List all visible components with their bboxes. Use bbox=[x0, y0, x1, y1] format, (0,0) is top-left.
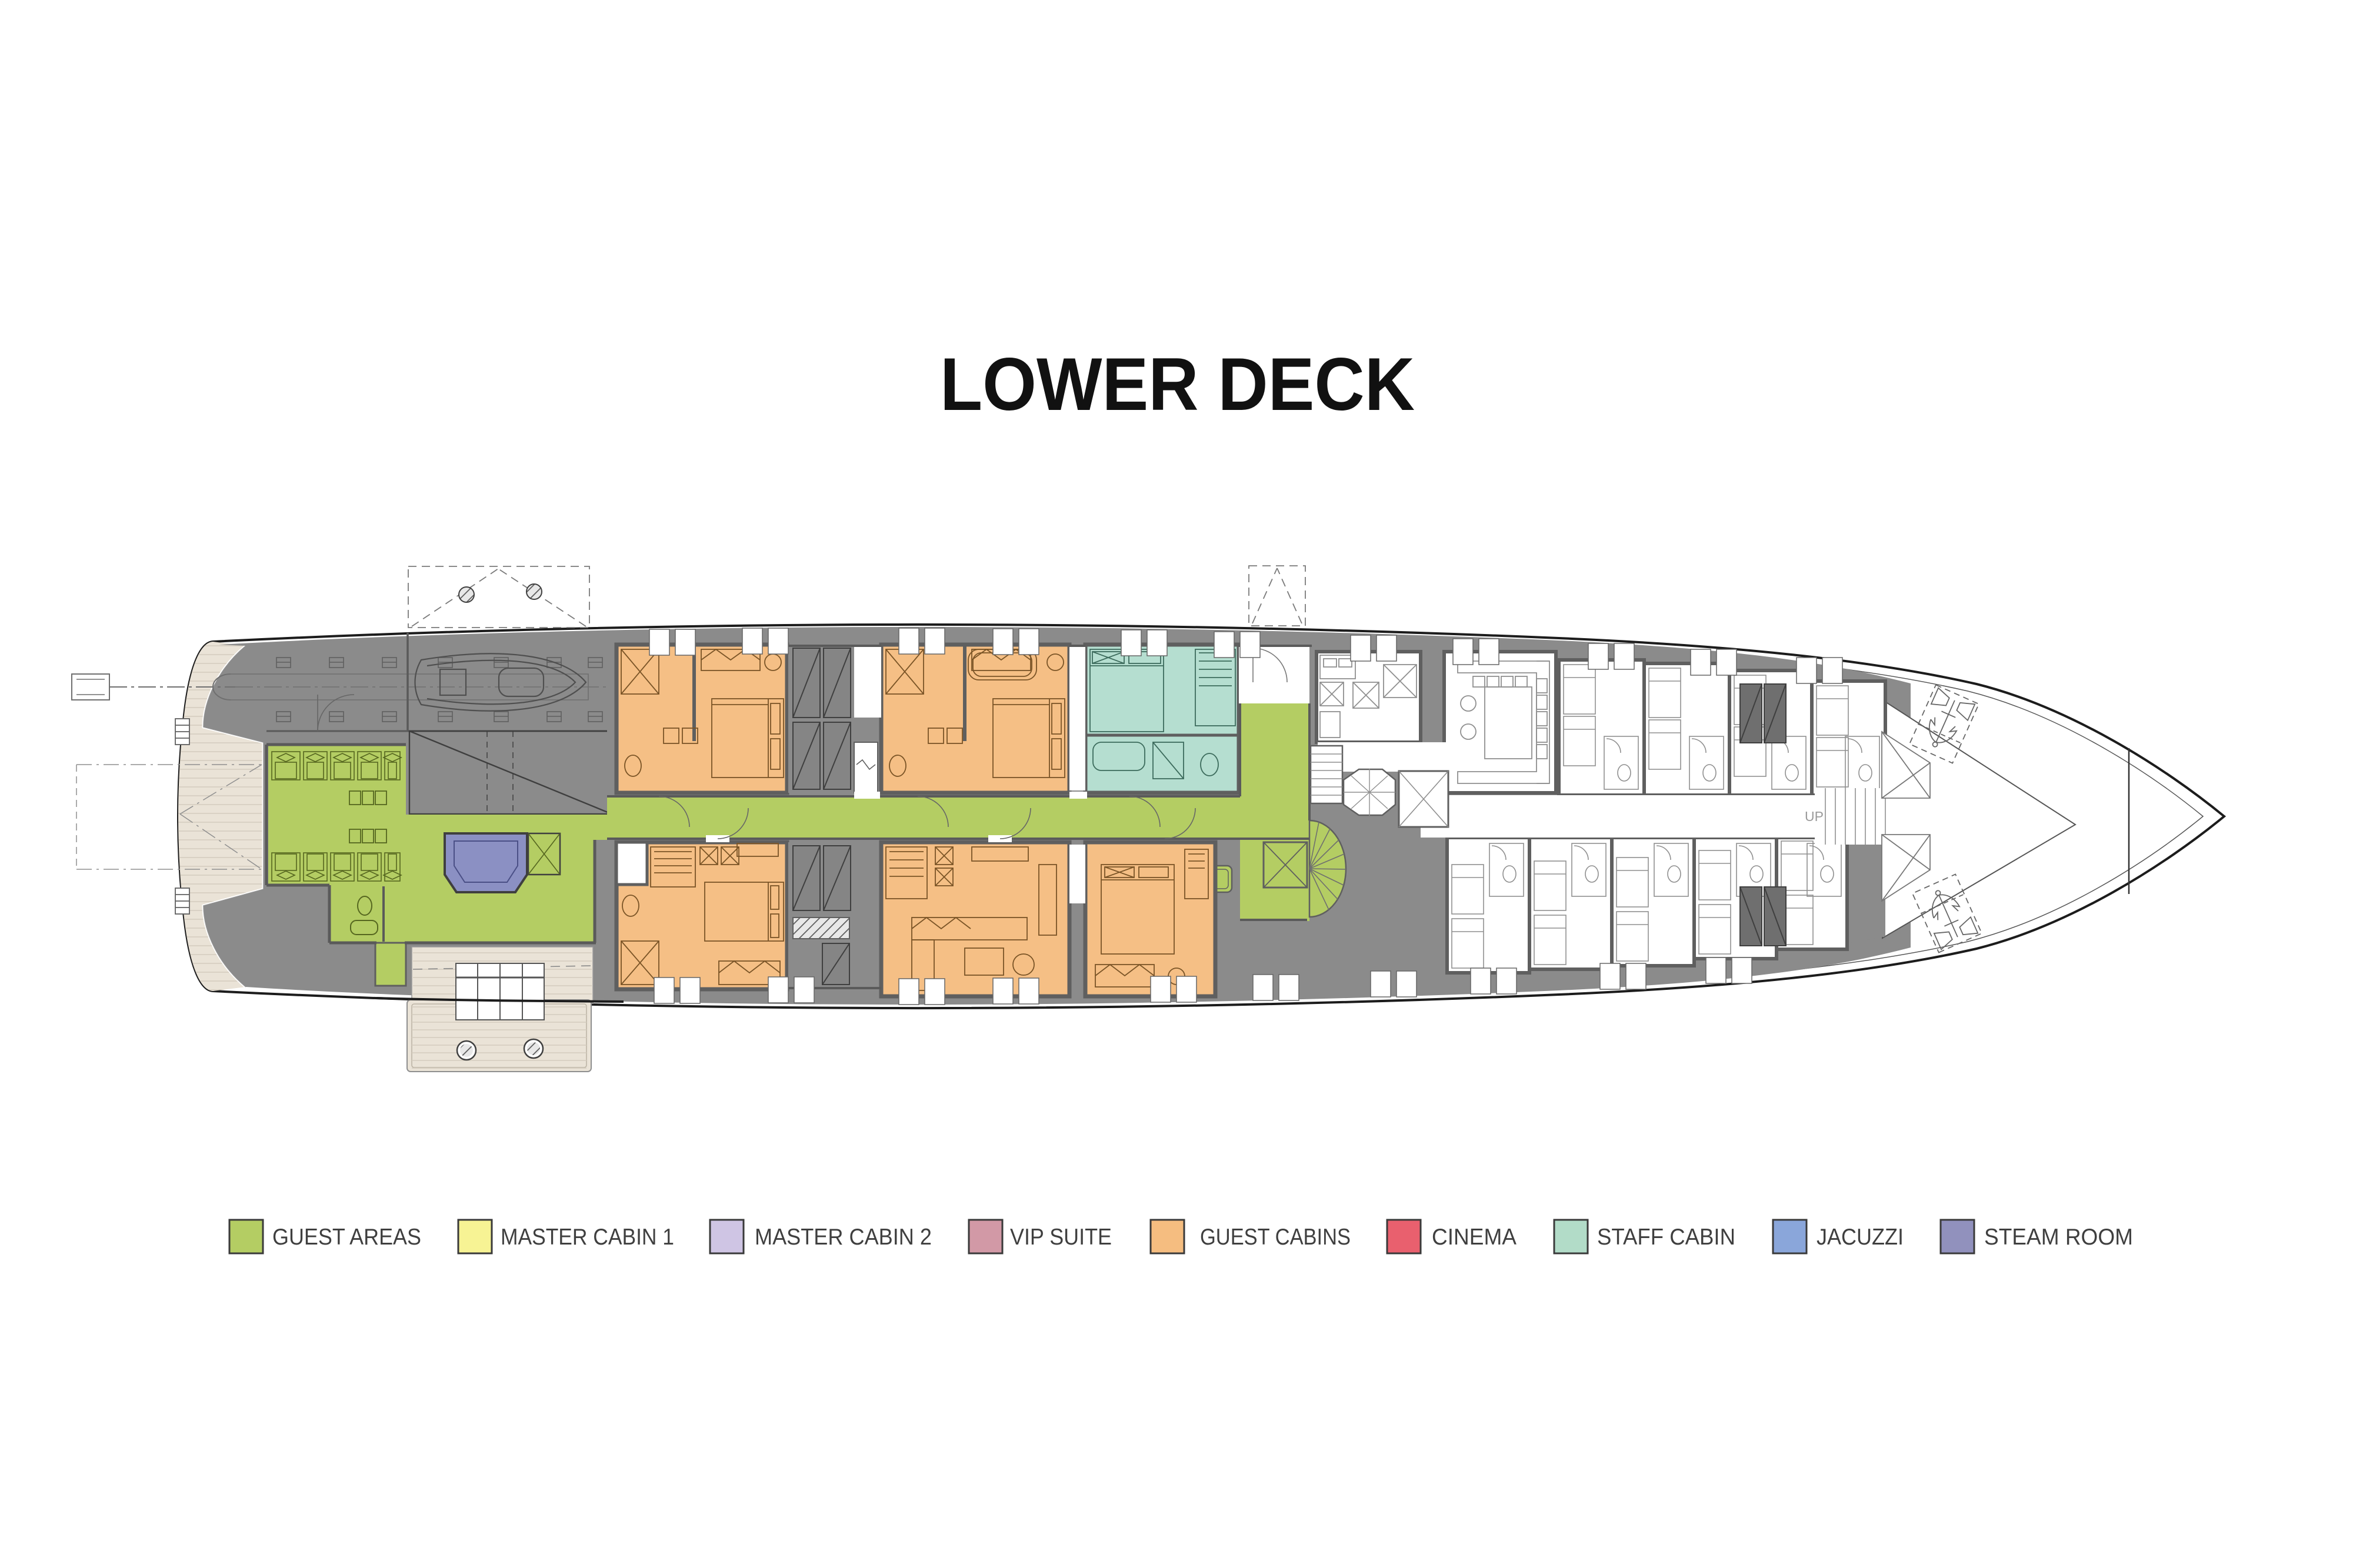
svg-text:MASTER CABIN 2: MASTER CABIN 2 bbox=[755, 1225, 932, 1250]
svg-text:GUEST AREAS: GUEST AREAS bbox=[272, 1225, 421, 1250]
svg-text:VIP SUITE: VIP SUITE bbox=[1010, 1225, 1112, 1250]
svg-text:CINEMA: CINEMA bbox=[1432, 1225, 1517, 1250]
svg-text:LOWER DECK: LOWER DECK bbox=[940, 342, 1415, 426]
svg-text:GUEST CABINS: GUEST CABINS bbox=[1200, 1225, 1351, 1250]
svg-text:STEAM ROOM: STEAM ROOM bbox=[1984, 1225, 2133, 1250]
svg-text:UP: UP bbox=[1805, 809, 1824, 824]
svg-text:MASTER CABIN 1: MASTER CABIN 1 bbox=[501, 1225, 674, 1250]
svg-text:STAFF CABIN: STAFF CABIN bbox=[1597, 1225, 1735, 1250]
svg-text:JACUZZI: JACUZZI bbox=[1817, 1225, 1904, 1250]
